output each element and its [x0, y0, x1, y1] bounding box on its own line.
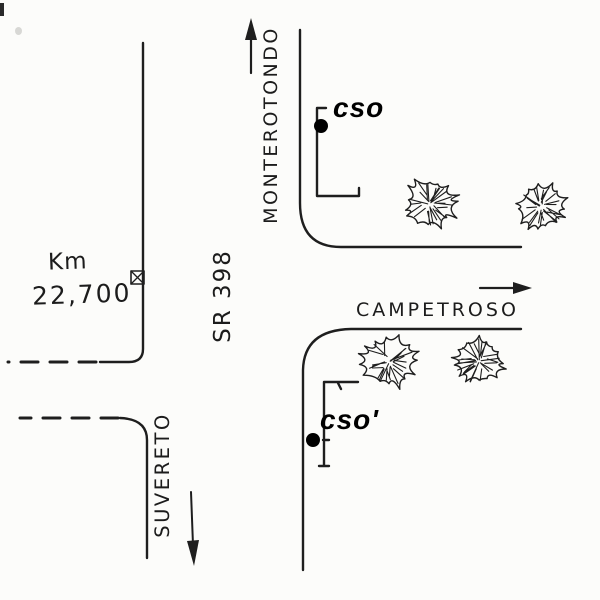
label-point-cso: cso [333, 92, 384, 124]
label-point-cso-prime: cso' [320, 404, 379, 436]
tree-icon [359, 335, 420, 390]
tree-icon [452, 336, 507, 382]
label-destination-monterotondo: MONTEROTONDO [260, 15, 286, 235]
road-sr398-west-edge-north [100, 43, 143, 362]
tree-outline [359, 335, 420, 390]
road-sr398-east-edge-south [303, 329, 521, 570]
hand-drawn-intersection-map: MONTEROTONDO SR 398 SUVERETO CAMPETROSO … [0, 0, 600, 600]
tree-group [359, 179, 568, 389]
label-road-campetroso: CAMPETROSO [356, 299, 519, 321]
road-sr398-west-edge-south [120, 418, 147, 558]
paper-smudge [15, 27, 22, 35]
label-km-value: 22,700 [32, 278, 132, 310]
road-sr398-east-edge-north [300, 30, 521, 247]
label-destination-suvereto: SUVERETO [151, 390, 175, 560]
cso-prime-dot [306, 433, 320, 447]
north-arrow-head-icon [245, 18, 257, 40]
tree-outline [516, 183, 568, 230]
cso-dot [314, 119, 328, 133]
label-km: Km [48, 248, 88, 275]
tree-icon [516, 183, 568, 230]
label-road-sr398: SR 398 [210, 231, 238, 361]
tree-icon [406, 179, 460, 229]
east-arrow-head-icon [513, 282, 532, 294]
scan-edge-artifact [0, 3, 4, 16]
south-arrow-shaft [191, 492, 193, 545]
south-arrow-head-icon [187, 540, 199, 566]
